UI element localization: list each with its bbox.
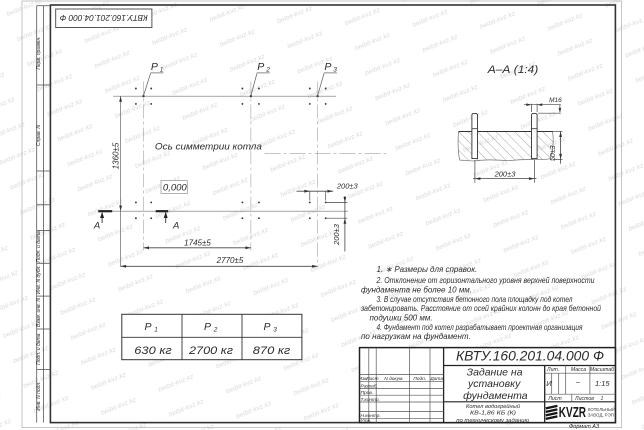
- svg-text:1745±5: 1745±5: [184, 239, 211, 248]
- svg-text:фундамента не более 10 мм.: фундамента не более 10 мм.: [361, 286, 472, 295]
- svg-text:Масса: Масса: [571, 367, 586, 373]
- svg-text:Дата: Дата: [429, 376, 443, 382]
- svg-text:1: 1: [601, 396, 604, 402]
- svg-text:Ось симметрии котла: Ось симметрии котла: [155, 141, 262, 152]
- svg-text:N докум.: N докум.: [384, 376, 403, 382]
- svg-text:Пров.: Пров.: [361, 390, 374, 396]
- svg-text:Лист: Лист: [547, 396, 562, 402]
- svg-text:Подп.: Подп.: [413, 376, 426, 382]
- svg-text:Взам. инв. N: Взам. инв. N: [36, 298, 42, 328]
- svg-text:3: 3: [333, 67, 337, 74]
- svg-text:КВ-1,86 КБ (К): КВ-1,86 КБ (К): [470, 411, 516, 417]
- svg-text:Справ. N: Справ. N: [36, 125, 42, 146]
- svg-text:А: А: [93, 220, 100, 231]
- svg-text:3. В случае отсутствия бетонно: 3. В случае отсутствия бетонного пола пл…: [377, 295, 573, 304]
- svg-text:2: 2: [213, 327, 218, 334]
- svg-text:Инв. N дубл.: Инв. N дубл.: [36, 265, 42, 294]
- svg-text:Лист: Лист: [365, 376, 378, 382]
- svg-text:А: А: [172, 220, 179, 231]
- svg-text:М16: М16: [549, 97, 562, 104]
- svg-text:Р: Р: [204, 321, 211, 333]
- svg-text:по нагрузкам на фундамент.: по нагрузкам на фундамент.: [361, 332, 471, 341]
- svg-text:1. ∗ Размеры для справок.: 1. ∗ Размеры для справок.: [377, 265, 478, 274]
- svg-text:Р: Р: [257, 61, 264, 73]
- svg-text:Подп. и дата: Подп. и дата: [36, 231, 42, 263]
- svg-text:ЗАВОД, РЭП: ЗАВОД, РЭП: [588, 412, 614, 417]
- svg-text:Котел водогрейный: Котел водогрейный: [466, 403, 520, 410]
- svg-text:200±3: 200±3: [332, 223, 341, 246]
- svg-text:Формат А3: Формат А3: [569, 424, 600, 430]
- svg-text:1360±5: 1360±5: [112, 142, 121, 169]
- svg-text:630 кг: 630 кг: [134, 345, 172, 357]
- svg-text:Р: Р: [144, 321, 151, 333]
- svg-text:по техническому заданию: по техническому заданию: [456, 418, 529, 424]
- svg-text:КВТУ.160.201.04.000 Ф: КВТУ.160.201.04.000 Ф: [59, 13, 148, 22]
- svg-text:Разраб.: Разраб.: [361, 383, 378, 389]
- svg-text:Масштаб: Масштаб: [590, 367, 615, 373]
- svg-text:2: 2: [265, 67, 270, 74]
- svg-text:Инв. N подл.: Инв. N подл.: [36, 381, 42, 410]
- svg-text:2700 кг: 2700 кг: [188, 345, 234, 357]
- svg-text:А–А (1:4): А–А (1:4): [487, 64, 539, 76]
- svg-text:Задание на: Задание на: [467, 366, 523, 378]
- svg-text:2. Отклонение от горизонтально: 2. Отклонение от горизонтального уровня …: [376, 276, 595, 285]
- svg-text:КВТУ.160.201.04.000 Ф: КВТУ.160.201.04.000 Ф: [456, 349, 604, 364]
- svg-text:Т.контр.: Т.контр.: [361, 397, 380, 403]
- svg-text:Подп. и дата: Подп. и дата: [36, 333, 42, 365]
- svg-text:1: 1: [154, 327, 158, 334]
- svg-text:4. Фундамент под котел разраба: 4. Фундамент под котел разрабатывает про…: [377, 323, 584, 332]
- svg-text:1:15: 1:15: [595, 379, 610, 388]
- svg-text:установку: установку: [467, 378, 521, 390]
- svg-text:1: 1: [160, 67, 164, 74]
- svg-text:забетонировать. Расстояние от: забетонировать. Расстояние от осей крайн…: [360, 304, 601, 313]
- svg-text:Р: Р: [263, 321, 270, 333]
- svg-text:Лит.: Лит.: [546, 367, 559, 373]
- svg-text:подушки 500 мм.: подушки 500 мм.: [370, 314, 433, 323]
- svg-text:фундамента: фундамента: [463, 390, 528, 402]
- svg-text:И: И: [546, 379, 552, 388]
- svg-text:Утв.: Утв.: [361, 418, 372, 424]
- svg-text:2770±5: 2770±5: [216, 256, 244, 265]
- svg-text:Перв. примен.: Перв. примен.: [36, 36, 42, 69]
- svg-text:870 кг: 870 кг: [253, 345, 291, 357]
- svg-text:Листов: Листов: [574, 396, 594, 402]
- svg-text:0,000: 0,000: [163, 183, 187, 194]
- svg-text:200±3: 200±3: [494, 169, 517, 178]
- svg-text:3: 3: [273, 327, 277, 334]
- svg-text:Р: Р: [324, 61, 331, 73]
- svg-text:200±3: 200±3: [336, 182, 359, 191]
- svg-text:–: –: [575, 378, 581, 387]
- svg-text:Р: Р: [151, 61, 158, 73]
- svg-text:50±3: 50±3: [550, 145, 557, 161]
- svg-text:KVZR: KVZR: [559, 404, 586, 420]
